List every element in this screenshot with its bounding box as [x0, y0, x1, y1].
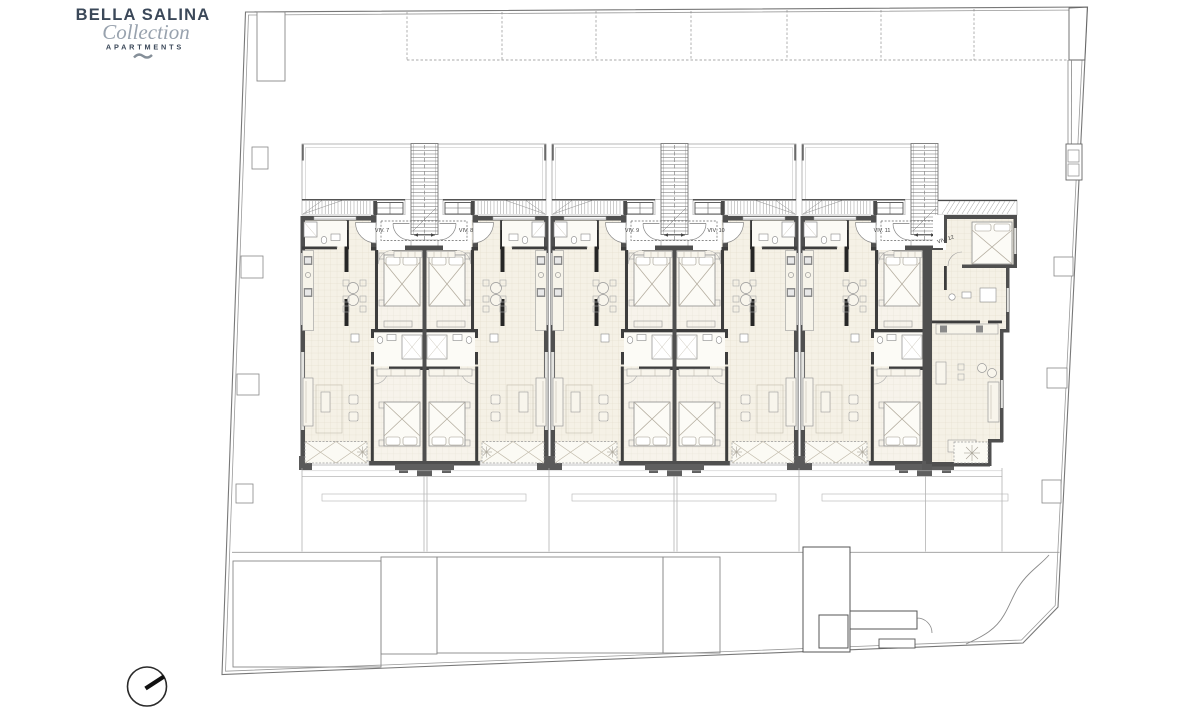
svg-text:VIV. 9: VIV. 9	[625, 228, 639, 234]
svg-text:VIV. 7: VIV. 7	[375, 228, 389, 234]
svg-text:VIV. 10: VIV. 10	[707, 228, 724, 234]
svg-text:VIV. 8: VIV. 8	[459, 228, 473, 234]
svg-text:VIV. 11: VIV. 11	[874, 228, 891, 234]
svg-text:Collection: Collection	[102, 20, 190, 44]
svg-text:APARTMENTS: APARTMENTS	[106, 43, 184, 52]
